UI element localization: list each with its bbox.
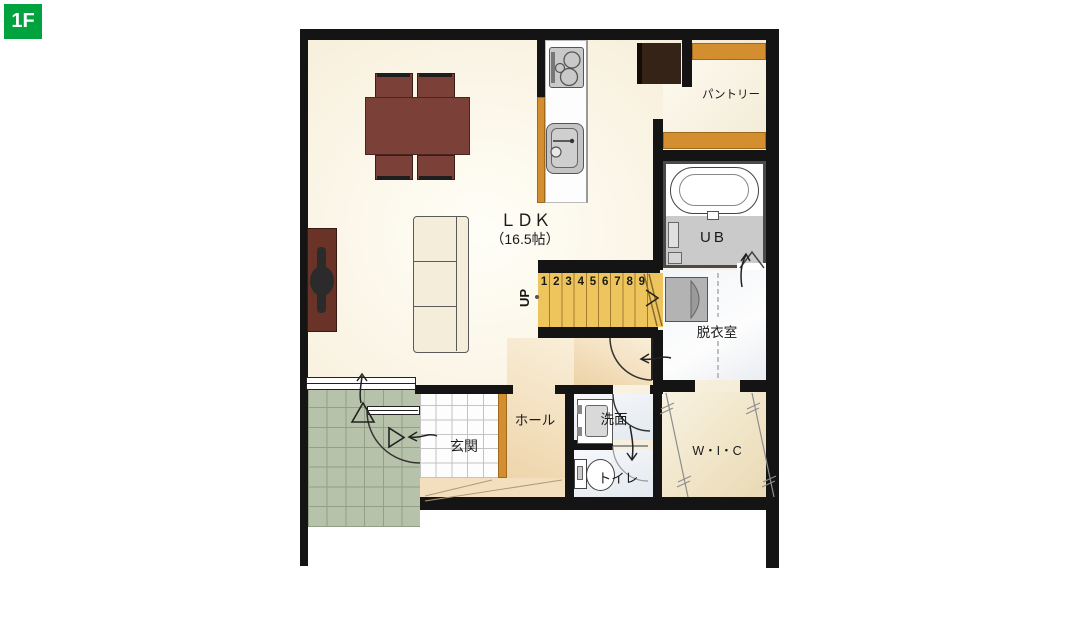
pantry-shelf-top bbox=[692, 43, 766, 60]
wall-washroom-top-left bbox=[555, 385, 613, 394]
stair-step-number: 7 bbox=[611, 276, 623, 290]
stair-step-number: 9 bbox=[636, 276, 648, 290]
washing-machine bbox=[665, 277, 708, 322]
floor-badge-label: 1F bbox=[11, 10, 34, 33]
pantry-shelf-bottom bbox=[663, 132, 766, 149]
ldk-label: ＬＤＫ bbox=[480, 206, 570, 231]
wall-stairs-bottom bbox=[538, 327, 658, 338]
floor-badge: 1F bbox=[4, 4, 42, 39]
dressing-room-label: 脱衣室 bbox=[686, 321, 748, 341]
walk-in-closet-label: W・I・C bbox=[684, 440, 750, 459]
sofa-cushion-line bbox=[414, 306, 456, 307]
unit-bath-label: UB bbox=[700, 229, 727, 246]
wall-fridge-stub bbox=[682, 40, 692, 87]
sofa bbox=[413, 216, 469, 353]
dining-chair bbox=[375, 73, 413, 98]
shower-panel bbox=[668, 222, 679, 248]
dining-chair-back bbox=[377, 176, 410, 180]
stairs-up-label: UP bbox=[517, 282, 531, 314]
stair-step-number: 6 bbox=[599, 276, 611, 290]
unit-bath-room: UB bbox=[663, 161, 766, 268]
wall-toilet-wic bbox=[653, 385, 662, 502]
dining-chair bbox=[375, 155, 413, 180]
vanity-handle-top bbox=[577, 405, 582, 414]
tv-board bbox=[307, 228, 337, 332]
dining-chair bbox=[417, 155, 455, 180]
wall-stairs-top bbox=[538, 260, 660, 273]
unit-bath-door-gap bbox=[737, 263, 766, 270]
stair-step-number: 4 bbox=[575, 276, 587, 290]
ldk-size-label: （16.5帖） bbox=[468, 229, 582, 249]
stair-step-numbers: 123456789 bbox=[538, 276, 648, 290]
kitchen-counter-edge bbox=[537, 97, 545, 203]
wall-bottom bbox=[420, 497, 779, 510]
vanity-handle-bottom bbox=[577, 427, 582, 436]
sofa-cushion-line bbox=[414, 261, 456, 262]
sofa-backrest-line bbox=[456, 217, 457, 351]
refrigerator bbox=[637, 43, 681, 84]
stove bbox=[549, 47, 584, 88]
wall-entrance-top bbox=[415, 385, 513, 394]
stair-step-number: 3 bbox=[562, 276, 574, 290]
bathtub-inner bbox=[679, 174, 749, 206]
window-south bbox=[306, 377, 416, 390]
wall-bath-top bbox=[653, 150, 779, 161]
dining-chair-back bbox=[419, 176, 452, 180]
toilet-tank-lid bbox=[577, 466, 583, 480]
pantry-label: パントリー bbox=[694, 86, 768, 102]
toilet-label: トイレ bbox=[592, 467, 644, 487]
dining-chair-back bbox=[377, 73, 410, 77]
washroom-label: 洗面 bbox=[593, 408, 635, 428]
kitchen-sink-basin bbox=[551, 128, 578, 168]
hall-label: ホール bbox=[506, 409, 564, 429]
window-south-mullion bbox=[307, 383, 415, 384]
entrance-tile-floor bbox=[420, 392, 499, 478]
entry-door bbox=[367, 406, 420, 415]
bathtub bbox=[670, 167, 759, 214]
wall-top bbox=[300, 29, 779, 40]
entrance-step-edge bbox=[498, 392, 507, 478]
stair-step-number: 2 bbox=[550, 276, 562, 290]
entrance-step-floor bbox=[420, 478, 565, 498]
stair-step-number: 5 bbox=[587, 276, 599, 290]
wall-bath-left bbox=[653, 161, 663, 270]
stair-step-number: 1 bbox=[538, 276, 550, 290]
entry-door-line bbox=[368, 410, 418, 411]
bath-stool bbox=[668, 252, 682, 264]
kitchen-sink bbox=[546, 123, 584, 174]
bathtub-faucet-deck bbox=[707, 211, 719, 220]
stair-step-number: 8 bbox=[624, 276, 636, 290]
wall-wic-top-left bbox=[662, 380, 695, 392]
wall-right bbox=[766, 29, 779, 568]
wall-wic-top-right bbox=[740, 380, 766, 392]
dining-chair-back bbox=[419, 73, 452, 77]
floor-plan-1f: 1F 123456789 UP bbox=[0, 0, 1082, 629]
entrance-label: 玄関 bbox=[442, 436, 486, 456]
dining-chair bbox=[417, 73, 455, 98]
hall-corridor-floor bbox=[574, 338, 655, 385]
tv-stand-icon bbox=[310, 266, 334, 296]
dining-table bbox=[365, 97, 470, 155]
